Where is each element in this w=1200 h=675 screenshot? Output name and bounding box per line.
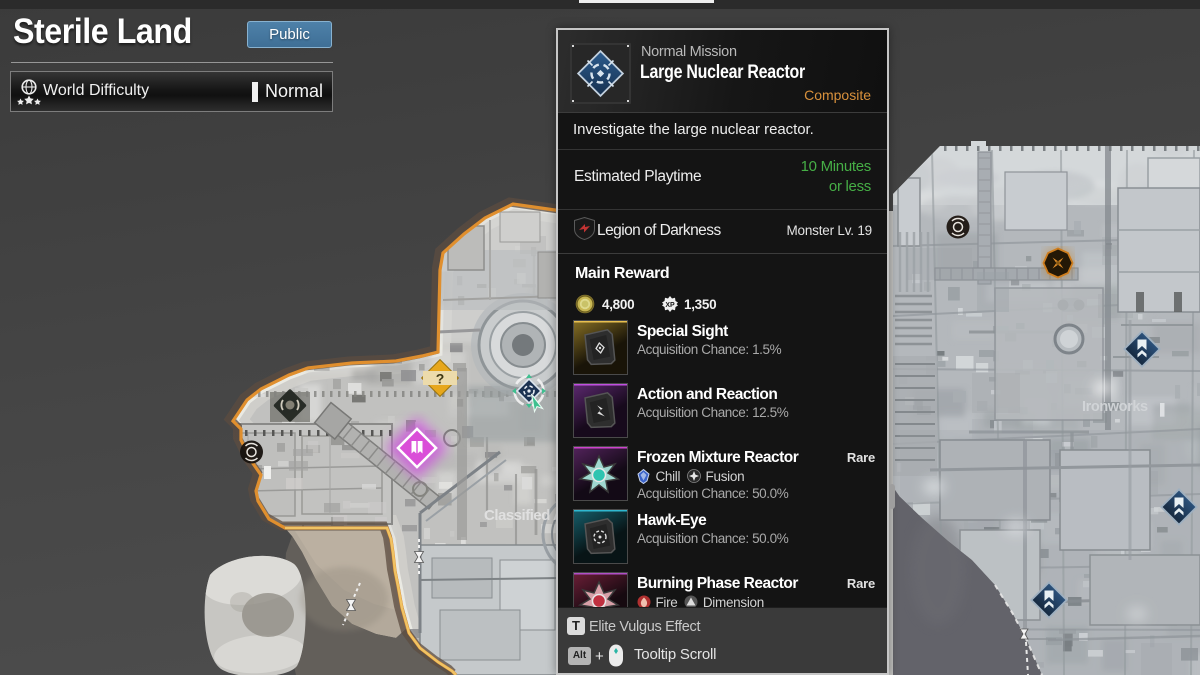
svg-text:Ironworks: Ironworks (1082, 399, 1148, 415)
svg-text:XP: XP (665, 302, 675, 309)
svg-text:?: ? (436, 371, 445, 387)
svg-text:Classified A: Classified A (484, 507, 564, 524)
